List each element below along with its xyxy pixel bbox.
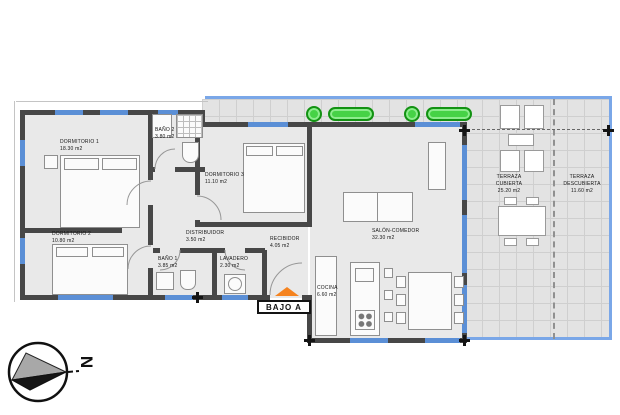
dining-table (408, 272, 452, 330)
window (20, 238, 25, 264)
room-area: 32.30 m2 (372, 235, 452, 242)
sofa-cushion (343, 192, 378, 222)
room-label-cocina: COCINA 6.60 m2 (317, 285, 351, 299)
room-name: COCINA (317, 285, 351, 292)
sliding-glass-door (462, 215, 467, 273)
chair (454, 276, 464, 288)
room-label-distribuidor: DISTRIBUIDOR 3.50 m2 (186, 230, 246, 244)
chair (504, 238, 517, 246)
chair (526, 197, 539, 205)
terrace-divider-line (553, 99, 555, 339)
cross-marker-icon (459, 335, 470, 346)
wall-segment (153, 248, 160, 253)
window (248, 122, 288, 127)
room-label-bano-1: BAÑO 1 3.85 m2 (158, 256, 198, 270)
window (58, 295, 113, 300)
room-label-dormitorio-1: DORMITORIO 1 18.30 m2 (60, 139, 140, 153)
pillow (92, 247, 124, 257)
coffee-table (508, 134, 534, 146)
wall-segment (180, 248, 225, 253)
chair (504, 197, 517, 205)
dimension-line (467, 129, 610, 130)
window (100, 110, 128, 115)
room-name: DISTRIBUIDOR (186, 230, 246, 237)
floor-plan: DORMITORIO 1 18.30 m2 BAÑO 2 3.80 m2 DOR… (0, 0, 620, 415)
compass-circle (9, 343, 67, 401)
room-name: DORMITORIO 1 (60, 139, 140, 146)
wall-segment (148, 205, 153, 233)
room-name: DORMITORIO 3 (205, 172, 265, 179)
chair (396, 276, 406, 288)
room-area: 10.80 m2 (52, 238, 132, 245)
stool (384, 312, 393, 322)
chair (454, 312, 464, 324)
pillow (102, 158, 137, 170)
room-area: 18.30 m2 (60, 146, 140, 153)
window (415, 122, 460, 127)
compass-north-label: N (76, 356, 96, 368)
armchair (500, 150, 520, 172)
room-name: SALÓN-COMEDOR (372, 228, 452, 235)
plant-hedge-icon (328, 107, 374, 121)
compass-arrow-top (12, 353, 66, 380)
wall-segment (175, 167, 205, 172)
chair (454, 294, 464, 306)
pillow (56, 247, 88, 257)
wall-segment (212, 250, 217, 300)
entrance-arrow-icon (275, 287, 299, 296)
room-label-dormitorio-3: DORMITORIO 3 11.10 m2 (205, 172, 265, 186)
pillow (246, 146, 273, 156)
compass-dash (68, 371, 79, 372)
room-area: 2.30 m2 (220, 263, 262, 270)
unit-badge: BAJO A (257, 300, 311, 314)
compass-icon (4, 336, 104, 411)
wall-segment (20, 110, 25, 300)
cross-marker-icon (603, 125, 614, 136)
cross-marker-icon (459, 125, 470, 136)
wall-segment (148, 167, 155, 172)
room-label-salon-comedor: SALÓN-COMEDOR 32.30 m2 (372, 228, 452, 242)
room-name: TERRAZA DESCUBIERTA (556, 174, 608, 188)
room-area: 3.80 m2 (155, 134, 201, 141)
room-name: LAVADERO (220, 256, 262, 263)
terrace-table (498, 206, 546, 236)
cross-marker-icon (304, 335, 315, 346)
wall-segment (262, 250, 267, 300)
room-area: 3.50 m2 (186, 237, 246, 244)
room-area: 3.85 m2 (158, 263, 198, 270)
room-area: 6.60 m2 (317, 292, 351, 299)
window (20, 140, 25, 166)
room-area: 11.10 m2 (205, 179, 265, 186)
room-label-recibidor: RECIBIDOR 4.05 m2 (270, 236, 310, 250)
plant-bush-icon (404, 106, 420, 122)
room-name: RECIBIDOR (270, 236, 310, 243)
pillow (64, 158, 99, 170)
cooktop (355, 310, 375, 330)
window (222, 295, 248, 300)
room-area: 11.60 m2 (556, 188, 608, 195)
pillow (276, 146, 303, 156)
nightstand (44, 155, 58, 169)
plant-bush-icon (306, 106, 322, 122)
room-label-dormitorio-2: DORMITORIO 2 10.80 m2 (52, 231, 132, 245)
compass-arrow-bottom (12, 372, 66, 390)
window (55, 110, 83, 115)
room-label-terraza-descubierta: TERRAZA DESCUBIERTA 11.60 m2 (556, 174, 608, 195)
toilet (180, 270, 196, 290)
washer-drum (228, 277, 242, 291)
room-area: 25.20 m2 (484, 188, 534, 195)
wall-segment (148, 233, 153, 245)
stool (384, 268, 393, 278)
terrace-edge (467, 337, 612, 340)
chair (396, 312, 406, 324)
building-outline (14, 101, 15, 302)
tv-unit (428, 142, 446, 190)
room-label-bano-2: BAÑO 2 3.80 m2 (155, 127, 201, 141)
window (425, 338, 460, 343)
room-label-lavadero: LAVADERO 2.30 m2 (220, 256, 262, 270)
armchair (500, 105, 520, 129)
window (350, 338, 388, 343)
stool (384, 290, 393, 300)
chair (396, 294, 406, 306)
terrace-edge (205, 96, 612, 99)
window (165, 295, 193, 300)
plant-hedge-icon (426, 107, 472, 121)
room-label-terraza-cubierta: TERRAZA CUBIERTA 25.20 m2 (484, 174, 534, 195)
building-outline (16, 101, 208, 102)
wall-segment (148, 268, 153, 300)
kitchen-sink (355, 268, 374, 282)
room-name: DORMITORIO 2 (52, 231, 132, 238)
room-area: 4.05 m2 (270, 243, 310, 250)
wall-segment (195, 222, 312, 227)
room-name: TERRAZA CUBIERTA (484, 174, 534, 188)
sliding-glass-door (462, 285, 467, 333)
cross-marker-icon (192, 292, 203, 303)
wall-segment (307, 122, 312, 227)
sink (156, 272, 174, 290)
room-name: BAÑO 1 (158, 256, 198, 263)
sliding-glass-door (462, 145, 467, 200)
chair (526, 238, 539, 246)
toilet (182, 142, 199, 163)
room-name: BAÑO 2 (155, 127, 201, 134)
armchair (524, 150, 544, 172)
armchair (524, 105, 544, 129)
